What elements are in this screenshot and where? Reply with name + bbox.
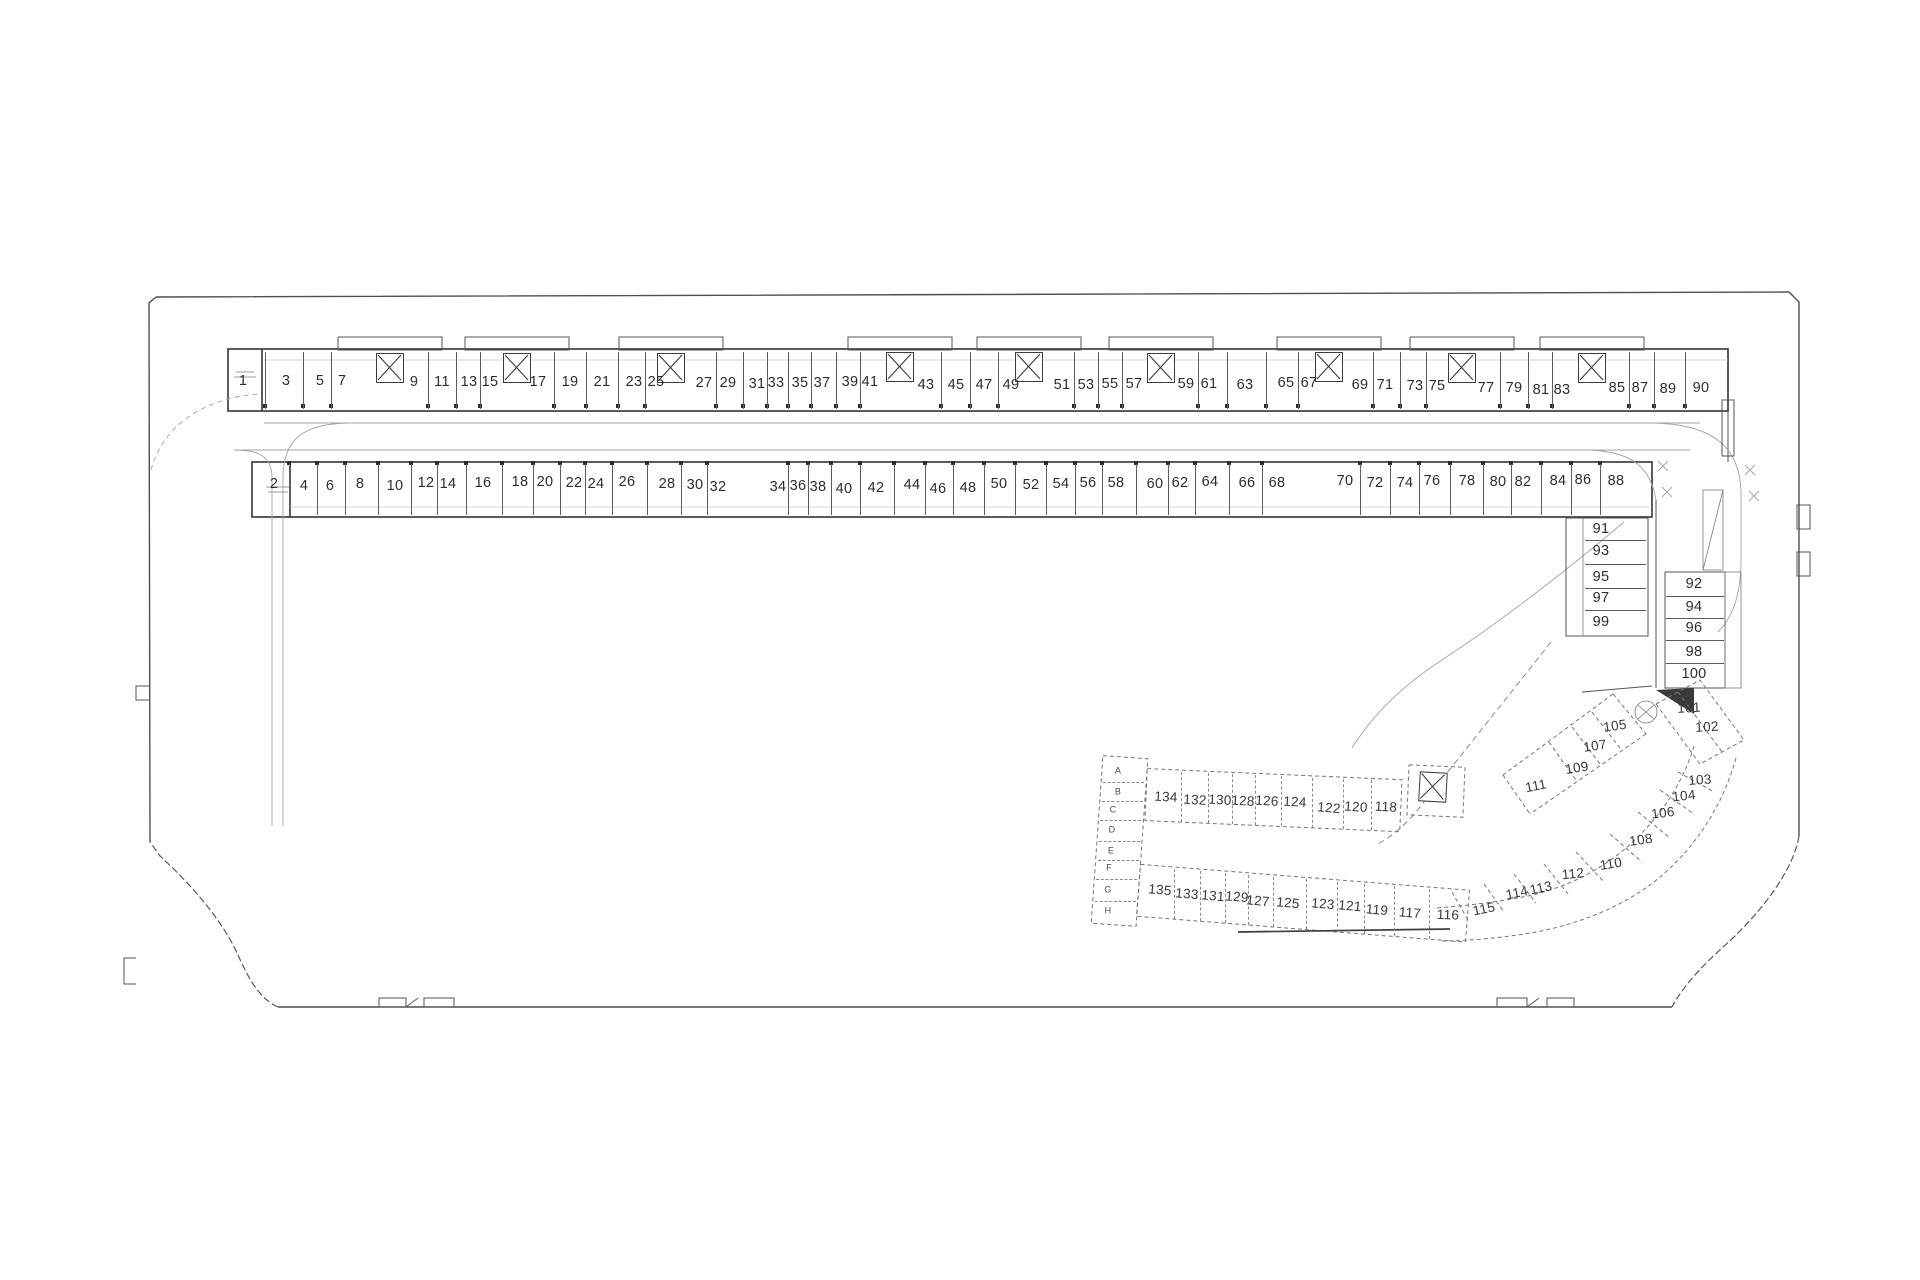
stall-divider — [970, 352, 971, 409]
stall-divider — [480, 352, 481, 409]
stall-label-102: 102 — [1695, 720, 1719, 735]
stall-label-40: 40 — [836, 482, 853, 497]
stall-divider — [1585, 588, 1646, 589]
stall-label-69: 69 — [1352, 378, 1369, 393]
stall-label-12: 12 — [418, 476, 435, 491]
elevator-shaft-icon — [1418, 771, 1448, 802]
stall-label-123: 123 — [1311, 896, 1336, 911]
stall-label-14: 14 — [440, 477, 457, 492]
floorplan-canvas: 1357911131517192123252729313335373941434… — [0, 0, 1920, 1280]
stall-divider — [618, 352, 619, 409]
stall-label-74: 74 — [1397, 476, 1414, 491]
stall-divider — [1273, 877, 1274, 927]
stall-label-85: 85 — [1609, 381, 1626, 396]
stall-label-118: 118 — [1374, 800, 1397, 815]
elevator-shaft-icon — [376, 353, 404, 383]
stall-label-31: 31 — [749, 377, 766, 392]
stall-divider — [1528, 352, 1529, 409]
stall-divider — [1229, 464, 1230, 515]
stall-divider — [466, 464, 467, 515]
stall-label-97: 97 — [1593, 591, 1610, 606]
stall-divider — [1429, 889, 1430, 939]
stall-label-127: 127 — [1246, 893, 1271, 908]
stall-divider — [428, 352, 429, 409]
stall-label-84: 84 — [1550, 474, 1567, 489]
stall-label-32: 32 — [710, 480, 727, 495]
stall-divider — [1306, 879, 1307, 929]
stall-label-19: 19 — [562, 375, 579, 390]
stall-divider — [1098, 352, 1099, 409]
stall-divider — [289, 464, 290, 515]
stall-label-17: 17 — [530, 375, 547, 390]
stall-divider — [1511, 464, 1512, 515]
stall-label-27: 27 — [696, 376, 713, 391]
stall-divider — [1426, 352, 1427, 409]
stall-label-43: 43 — [918, 378, 935, 393]
elevator-shaft-icon — [1315, 352, 1343, 382]
stall-divider — [1666, 596, 1724, 597]
stall-label-C: C — [1110, 806, 1117, 815]
stall-label-45: 45 — [948, 378, 965, 393]
stall-divider — [456, 352, 457, 409]
stall-label-25: 25 — [648, 375, 665, 390]
stall-divider — [378, 464, 379, 515]
stall-divider — [586, 352, 587, 409]
stall-divider — [1181, 772, 1182, 822]
stall-label-61: 61 — [1201, 377, 1218, 392]
stall-label-4: 4 — [300, 479, 308, 494]
stall-label-38: 38 — [810, 480, 827, 495]
stall-label-108: 108 — [1628, 832, 1653, 849]
stall-label-52: 52 — [1023, 478, 1040, 493]
stall-divider — [1400, 352, 1401, 409]
stall-label-48: 48 — [960, 481, 977, 496]
stall-divider — [1373, 352, 1374, 409]
stall-label-135: 135 — [1148, 882, 1173, 897]
stall-divider — [265, 352, 266, 409]
stall-label-49: 49 — [1003, 378, 1020, 393]
floorplan-drawing — [0, 0, 1920, 1280]
stall-label-95: 95 — [1593, 570, 1610, 585]
stall-divider — [831, 464, 832, 515]
stall-label-8: 8 — [356, 477, 364, 492]
stall-divider — [860, 464, 861, 515]
elevator-shaft-icon — [1147, 353, 1175, 383]
stall-label-72: 72 — [1367, 476, 1384, 491]
stall-label-109: 109 — [1564, 759, 1589, 776]
elevator-shaft-icon — [886, 352, 914, 382]
stall-label-42: 42 — [868, 481, 885, 496]
stall-divider — [1046, 464, 1047, 515]
stall-divider — [1281, 776, 1282, 826]
stall-label-22: 22 — [566, 476, 583, 491]
stall-label-71: 71 — [1377, 378, 1394, 393]
stall-label-E: E — [1108, 847, 1114, 856]
stall-label-96: 96 — [1686, 621, 1703, 636]
stall-label-122: 122 — [1317, 800, 1342, 815]
stall-divider — [1371, 780, 1372, 830]
stall-divider — [1654, 352, 1655, 409]
stall-label-26: 26 — [619, 475, 636, 490]
stall-label-125: 125 — [1276, 895, 1301, 910]
stall-label-120: 120 — [1344, 799, 1368, 814]
stall-label-7: 7 — [338, 374, 346, 389]
stall-label-121: 121 — [1338, 898, 1363, 913]
stall-label-134: 134 — [1154, 790, 1178, 805]
stall-label-10: 10 — [387, 479, 404, 494]
elevator-shaft-icon — [1448, 353, 1476, 383]
stall-divider — [1100, 820, 1141, 821]
stall-divider — [1666, 640, 1724, 641]
stall-divider — [1364, 884, 1365, 934]
stall-label-89: 89 — [1660, 382, 1677, 397]
stall-divider — [303, 352, 304, 409]
stall-divider — [1075, 464, 1076, 515]
stall-label-16: 16 — [475, 476, 492, 491]
stall-divider — [811, 352, 812, 409]
stall-divider — [502, 464, 503, 515]
stall-label-128: 128 — [1231, 794, 1255, 809]
stall-label-1: 1 — [239, 374, 247, 389]
stall-label-28: 28 — [659, 477, 676, 492]
stall-label-93: 93 — [1593, 544, 1610, 559]
stall-divider — [681, 464, 682, 515]
stall-label-132: 132 — [1183, 793, 1207, 808]
stall-label-130: 130 — [1208, 793, 1232, 808]
stall-label-55: 55 — [1102, 377, 1119, 392]
stall-label-92: 92 — [1686, 577, 1703, 592]
stall-label-79: 79 — [1506, 381, 1523, 396]
stall-label-77: 77 — [1478, 381, 1495, 396]
stall-label-81: 81 — [1533, 383, 1550, 398]
stall-label-133: 133 — [1175, 886, 1200, 901]
stall-divider — [743, 352, 744, 409]
stall-divider — [1262, 464, 1263, 515]
stall-label-11: 11 — [434, 375, 450, 390]
stall-label-46: 46 — [930, 482, 947, 497]
stall-label-47: 47 — [976, 378, 993, 393]
stall-divider — [1074, 352, 1075, 409]
stall-label-63: 63 — [1237, 378, 1254, 393]
stall-label-78: 78 — [1459, 474, 1476, 489]
stall-divider — [1098, 860, 1139, 861]
stall-label-90: 90 — [1693, 381, 1710, 396]
stall-divider — [1103, 782, 1144, 783]
stall-label-99: 99 — [1593, 615, 1610, 630]
stall-label-30: 30 — [687, 478, 704, 493]
elevator-shaft-icon — [503, 353, 531, 383]
stall-divider — [331, 352, 332, 409]
stall-label-131: 131 — [1201, 888, 1226, 903]
stall-label-68: 68 — [1269, 476, 1286, 491]
stall-label-36: 36 — [790, 479, 807, 494]
stall-label-60: 60 — [1147, 477, 1164, 492]
stall-label-13: 13 — [461, 375, 478, 390]
stall-divider — [411, 464, 412, 515]
stall-divider — [1168, 464, 1169, 515]
stall-divider — [1390, 464, 1391, 515]
stall-label-3: 3 — [282, 374, 290, 389]
stall-divider — [941, 352, 942, 409]
stall-label-98: 98 — [1686, 645, 1703, 660]
stall-label-94: 94 — [1686, 600, 1703, 615]
stall-label-117: 117 — [1398, 905, 1422, 920]
stall-label-86: 86 — [1575, 473, 1592, 488]
stall-divider — [560, 464, 561, 515]
stall-label-82: 82 — [1515, 475, 1532, 490]
stall-label-116: 116 — [1437, 908, 1460, 922]
stall-divider — [612, 464, 613, 515]
stall-label-34: 34 — [770, 480, 787, 495]
stall-label-73: 73 — [1407, 379, 1424, 394]
stall-label-100: 100 — [1681, 667, 1706, 682]
stall-label-H: H — [1105, 907, 1112, 916]
stall-label-126: 126 — [1255, 794, 1279, 809]
stall-divider — [345, 464, 346, 515]
stall-divider — [1096, 879, 1137, 880]
stall-label-66: 66 — [1239, 476, 1256, 491]
stall-divider — [1394, 886, 1395, 936]
stall-label-107: 107 — [1582, 738, 1607, 755]
stall-label-101: 101 — [1677, 701, 1701, 716]
stall-divider — [647, 464, 648, 515]
stall-label-64: 64 — [1202, 475, 1219, 490]
stall-label-18: 18 — [512, 475, 529, 490]
stall-label-20: 20 — [537, 475, 554, 490]
column-92-100 — [1665, 400, 1741, 688]
stall-divider — [984, 464, 985, 515]
stall-divider — [1450, 464, 1451, 515]
stall-divider — [998, 352, 999, 409]
stall-divider — [716, 352, 717, 409]
stall-label-103: 103 — [1688, 772, 1712, 787]
stall-divider — [1195, 464, 1196, 515]
stall-label-104: 104 — [1672, 788, 1697, 804]
stall-label-39: 39 — [842, 375, 859, 390]
stall-divider — [585, 464, 586, 515]
stall-divider — [1136, 464, 1137, 515]
stall-label-57: 57 — [1126, 377, 1143, 392]
stall-label-51: 51 — [1054, 378, 1071, 393]
stall-divider — [1298, 352, 1299, 409]
stall-label-124: 124 — [1283, 795, 1307, 810]
stall-divider — [1666, 618, 1724, 619]
building-row-second — [252, 462, 1652, 517]
stall-label-35: 35 — [792, 376, 809, 391]
stall-label-29: 29 — [720, 376, 737, 391]
stall-label-41: 41 — [862, 375, 879, 390]
stall-divider — [533, 464, 534, 515]
stall-divider — [788, 352, 789, 409]
stall-divider — [1343, 779, 1344, 829]
stall-label-65: 65 — [1278, 376, 1295, 391]
stall-label-105: 105 — [1602, 718, 1627, 735]
stall-divider — [1102, 801, 1143, 802]
stall-label-5: 5 — [316, 374, 324, 389]
stall-label-54: 54 — [1053, 477, 1070, 492]
stall-divider — [1360, 464, 1361, 515]
stall-divider — [1483, 464, 1484, 515]
stall-divider — [953, 464, 954, 515]
stall-label-50: 50 — [991, 477, 1008, 492]
stall-label-83: 83 — [1554, 383, 1571, 398]
stall-label-112: 112 — [1561, 866, 1585, 882]
stall-divider — [1585, 610, 1646, 611]
stall-label-62: 62 — [1172, 476, 1189, 491]
stall-divider — [1552, 352, 1553, 409]
stall-divider — [1015, 464, 1016, 515]
stall-label-21: 21 — [594, 375, 611, 390]
stall-label-15: 15 — [482, 375, 499, 390]
stall-label-44: 44 — [904, 478, 921, 493]
stall-divider — [1585, 564, 1646, 565]
stall-label-A: A — [1115, 767, 1121, 776]
stall-divider — [836, 352, 837, 409]
stall-label-D: D — [1109, 826, 1116, 835]
stall-divider — [437, 464, 438, 515]
stall-divider — [1266, 352, 1267, 409]
stall-divider — [1102, 464, 1103, 515]
stall-divider — [1122, 352, 1123, 409]
stall-label-B: B — [1115, 788, 1121, 797]
stall-label-6: 6 — [326, 479, 334, 494]
stall-divider — [1099, 841, 1140, 842]
stall-divider — [1629, 352, 1630, 409]
stall-label-58: 58 — [1108, 476, 1125, 491]
stall-divider — [1500, 352, 1501, 409]
building-row-top — [228, 337, 1728, 462]
stall-label-2: 2 — [270, 477, 278, 492]
stall-divider — [1541, 464, 1542, 515]
stall-label-59: 59 — [1178, 377, 1195, 392]
stall-label-76: 76 — [1424, 474, 1441, 489]
stall-divider — [1685, 352, 1686, 409]
stall-label-9: 9 — [410, 375, 418, 390]
stall-label-119: 119 — [1365, 902, 1389, 917]
stall-divider — [1198, 352, 1199, 409]
stall-label-24: 24 — [588, 477, 605, 492]
stall-label-37: 37 — [814, 376, 831, 391]
stall-divider — [894, 464, 895, 515]
stall-divider — [1227, 352, 1228, 409]
stall-divider — [1571, 464, 1572, 515]
stall-divider — [1585, 540, 1646, 541]
stall-label-106: 106 — [1651, 805, 1676, 821]
stall-label-75: 75 — [1429, 379, 1446, 394]
site-boundary — [124, 292, 1810, 1007]
stall-label-G: G — [1104, 886, 1111, 895]
stall-divider — [1095, 901, 1136, 902]
stall-label-70: 70 — [1337, 474, 1354, 489]
stall-divider — [554, 352, 555, 409]
stall-divider — [1312, 778, 1313, 828]
stall-label-80: 80 — [1490, 475, 1507, 490]
stall-label-91: 91 — [1593, 522, 1610, 537]
stall-divider — [925, 464, 926, 515]
stall-label-53: 53 — [1078, 378, 1095, 393]
stall-divider — [1600, 464, 1601, 515]
stall-divider — [1666, 663, 1724, 664]
stall-divider — [1419, 464, 1420, 515]
stall-label-88: 88 — [1608, 474, 1625, 489]
stall-label-87: 87 — [1632, 381, 1649, 396]
elevator-shaft-icon — [1578, 353, 1606, 383]
stall-label-33: 33 — [768, 376, 785, 391]
stall-divider — [645, 352, 646, 409]
stall-label-23: 23 — [626, 375, 643, 390]
stall-label-110: 110 — [1599, 856, 1623, 873]
stall-label-F: F — [1106, 864, 1112, 873]
stall-divider — [317, 464, 318, 515]
stall-label-56: 56 — [1080, 476, 1097, 491]
stall-divider — [707, 464, 708, 515]
stall-label-67: 67 — [1301, 376, 1318, 391]
